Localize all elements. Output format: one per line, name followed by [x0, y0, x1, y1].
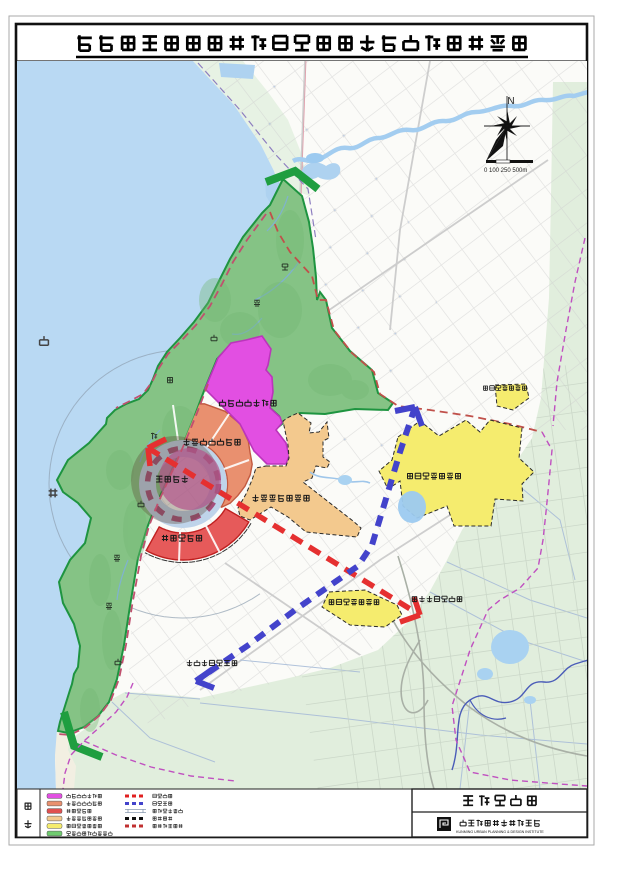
svg-text:KUNMING URBAN PLANNING & DESIG: KUNMING URBAN PLANNING & DESIGN INSTITUT…	[456, 830, 544, 834]
svg-text:N: N	[507, 96, 514, 107]
svg-text:0 100 250 500m: 0 100 250 500m	[484, 168, 527, 174]
